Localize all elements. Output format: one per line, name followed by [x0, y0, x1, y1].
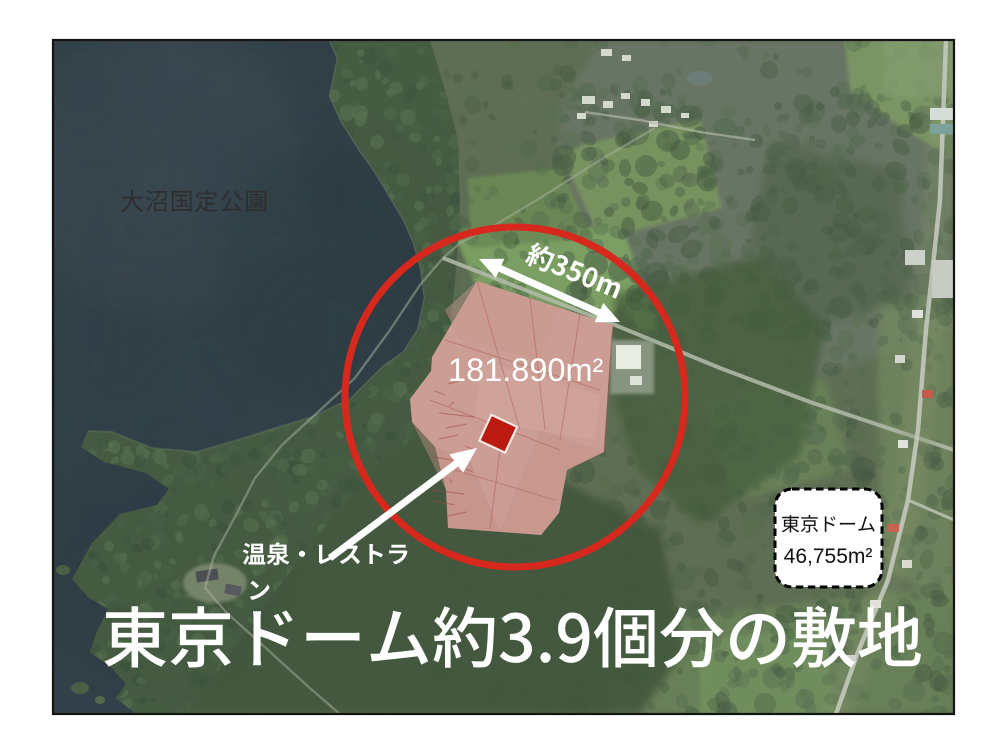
svg-text:46,755m²: 46,755m²	[784, 545, 873, 568]
svg-text:181.890m²: 181.890m²	[448, 352, 604, 388]
